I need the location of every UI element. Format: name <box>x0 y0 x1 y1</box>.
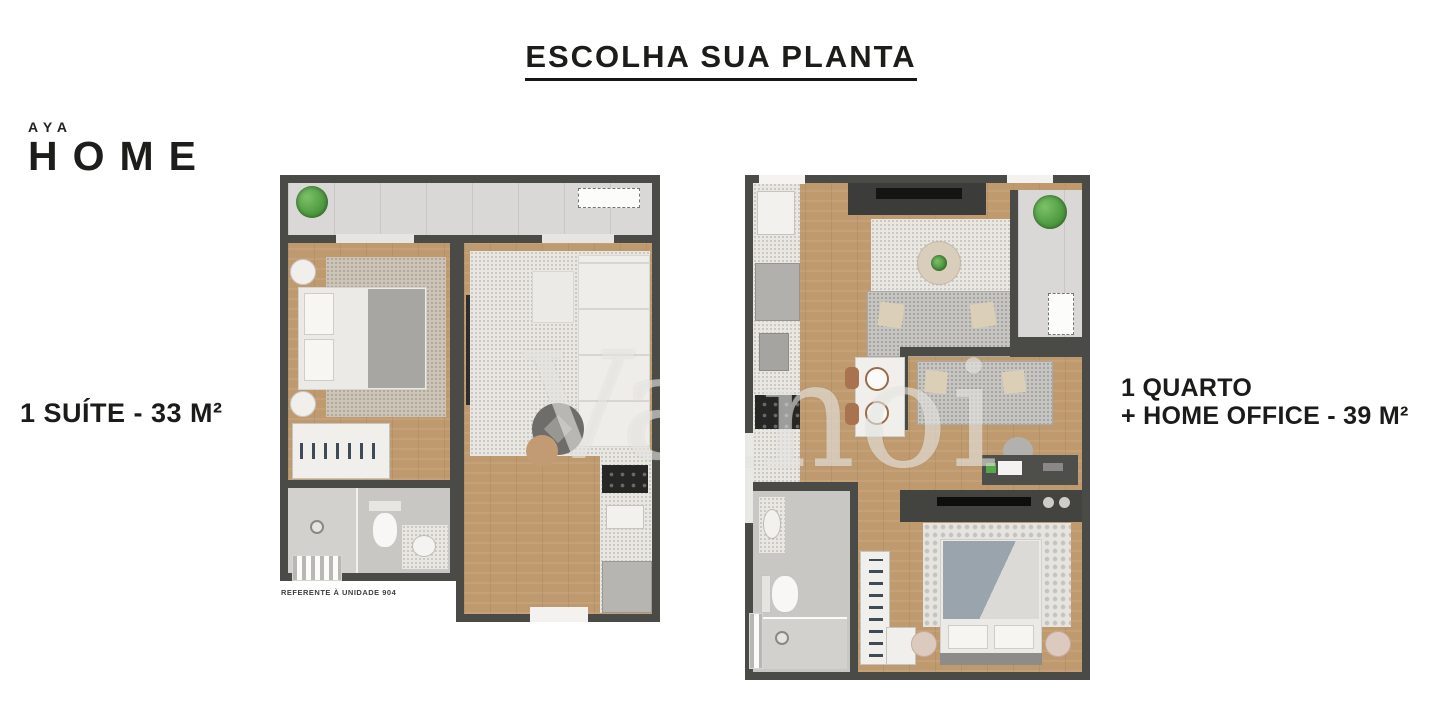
toilet <box>372 512 398 548</box>
plan-label-quarto-home-office: 1 QUARTO + HOME OFFICE - 39 M² <box>1121 374 1409 430</box>
ac-condenser-marking <box>578 188 640 208</box>
brand-logo: AYA HOME <box>28 120 211 177</box>
entry-door-threshold <box>530 607 588 622</box>
bathroom-wall <box>753 482 858 491</box>
cooktop <box>602 465 648 493</box>
header: ESCOLHA SUA PLANTA <box>0 18 1442 102</box>
top-window <box>1007 175 1053 183</box>
plan-label-line1: 1 QUARTO <box>1121 374 1409 402</box>
bed-pillow <box>948 625 988 649</box>
shower-head <box>310 520 324 534</box>
cooktop <box>755 395 800 429</box>
unit-reference-caption: REFERENTE À UNIDADE 904 <box>281 588 396 597</box>
sink <box>412 535 436 557</box>
sofa <box>578 255 650 447</box>
toilet <box>771 575 799 613</box>
tv <box>876 188 962 199</box>
shower-head <box>775 631 789 645</box>
desk-keyboard <box>1043 463 1063 471</box>
sink <box>763 509 781 539</box>
laptop <box>998 461 1022 475</box>
sofa-pillow <box>969 301 996 328</box>
side-table <box>290 391 316 417</box>
bedroom-tv-rack <box>900 490 1082 522</box>
desk-plant <box>986 463 996 473</box>
shower-glass <box>356 488 358 573</box>
dining-chair <box>865 401 889 425</box>
brand-logo-main: HOME <box>28 136 211 177</box>
centerpiece-plant <box>931 255 947 271</box>
floorplan-quarto-home-office[interactable]: Vanoi <box>745 175 1090 680</box>
bed-pillow <box>994 625 1034 649</box>
balcony-plant <box>1033 195 1067 229</box>
sofa-pillow <box>1002 370 1026 394</box>
side-table <box>290 259 316 285</box>
floorplan-suite[interactable]: Vanoi <box>280 175 660 622</box>
dining-chair <box>845 367 859 389</box>
balcony-plant <box>296 186 328 218</box>
sofa-pillow <box>877 301 904 328</box>
pouf <box>526 435 558 467</box>
toilet-tank <box>368 500 402 512</box>
shower-glass <box>757 617 847 619</box>
shower <box>757 619 847 669</box>
side-window <box>745 433 753 523</box>
office-wall <box>900 347 1090 356</box>
rack-decor <box>1043 497 1054 508</box>
nightstand <box>1045 631 1071 657</box>
plan-label-suite: 1 SUÍTE - 33 M² <box>20 398 223 428</box>
kitchen-sink <box>757 191 795 235</box>
rack-decor <box>1059 497 1070 508</box>
wardrobe-clothes <box>300 443 382 459</box>
bath-mat <box>749 613 763 669</box>
chaise <box>532 271 574 323</box>
oven <box>759 333 789 371</box>
bath-mat <box>292 555 342 581</box>
plan-label-line2: + HOME OFFICE - 39 M² <box>1121 402 1409 430</box>
wardrobe-clothes <box>869 559 883 657</box>
entry-door-threshold <box>759 175 805 184</box>
bed-blanket <box>368 289 425 388</box>
desk <box>982 455 1078 485</box>
bed-pillow <box>304 339 334 381</box>
bed-blanket <box>943 541 1039 619</box>
page: ESCOLHA SUA PLANTA AYA HOME 1 SUÍTE - 33… <box>0 0 1442 703</box>
kitchen-sink <box>606 505 644 529</box>
bed-headboard <box>940 653 1042 665</box>
bed-pillow <box>304 293 334 335</box>
bedroom-tv <box>937 497 1031 506</box>
living-window <box>542 234 614 243</box>
brand-logo-top: AYA <box>28 120 211 134</box>
sofa-pillow <box>924 370 948 394</box>
dining-chair <box>845 403 859 425</box>
toilet-tank <box>761 575 771 613</box>
nightstand <box>911 631 937 657</box>
ac-condenser-marking <box>1048 293 1074 335</box>
balcony-wall <box>1010 190 1018 340</box>
fridge <box>755 263 800 321</box>
page-title: ESCOLHA SUA PLANTA <box>525 39 916 81</box>
fridge <box>602 561 652 613</box>
bedroom-window <box>336 234 414 243</box>
bathroom-wall <box>850 482 858 672</box>
dining-chair <box>865 367 889 391</box>
